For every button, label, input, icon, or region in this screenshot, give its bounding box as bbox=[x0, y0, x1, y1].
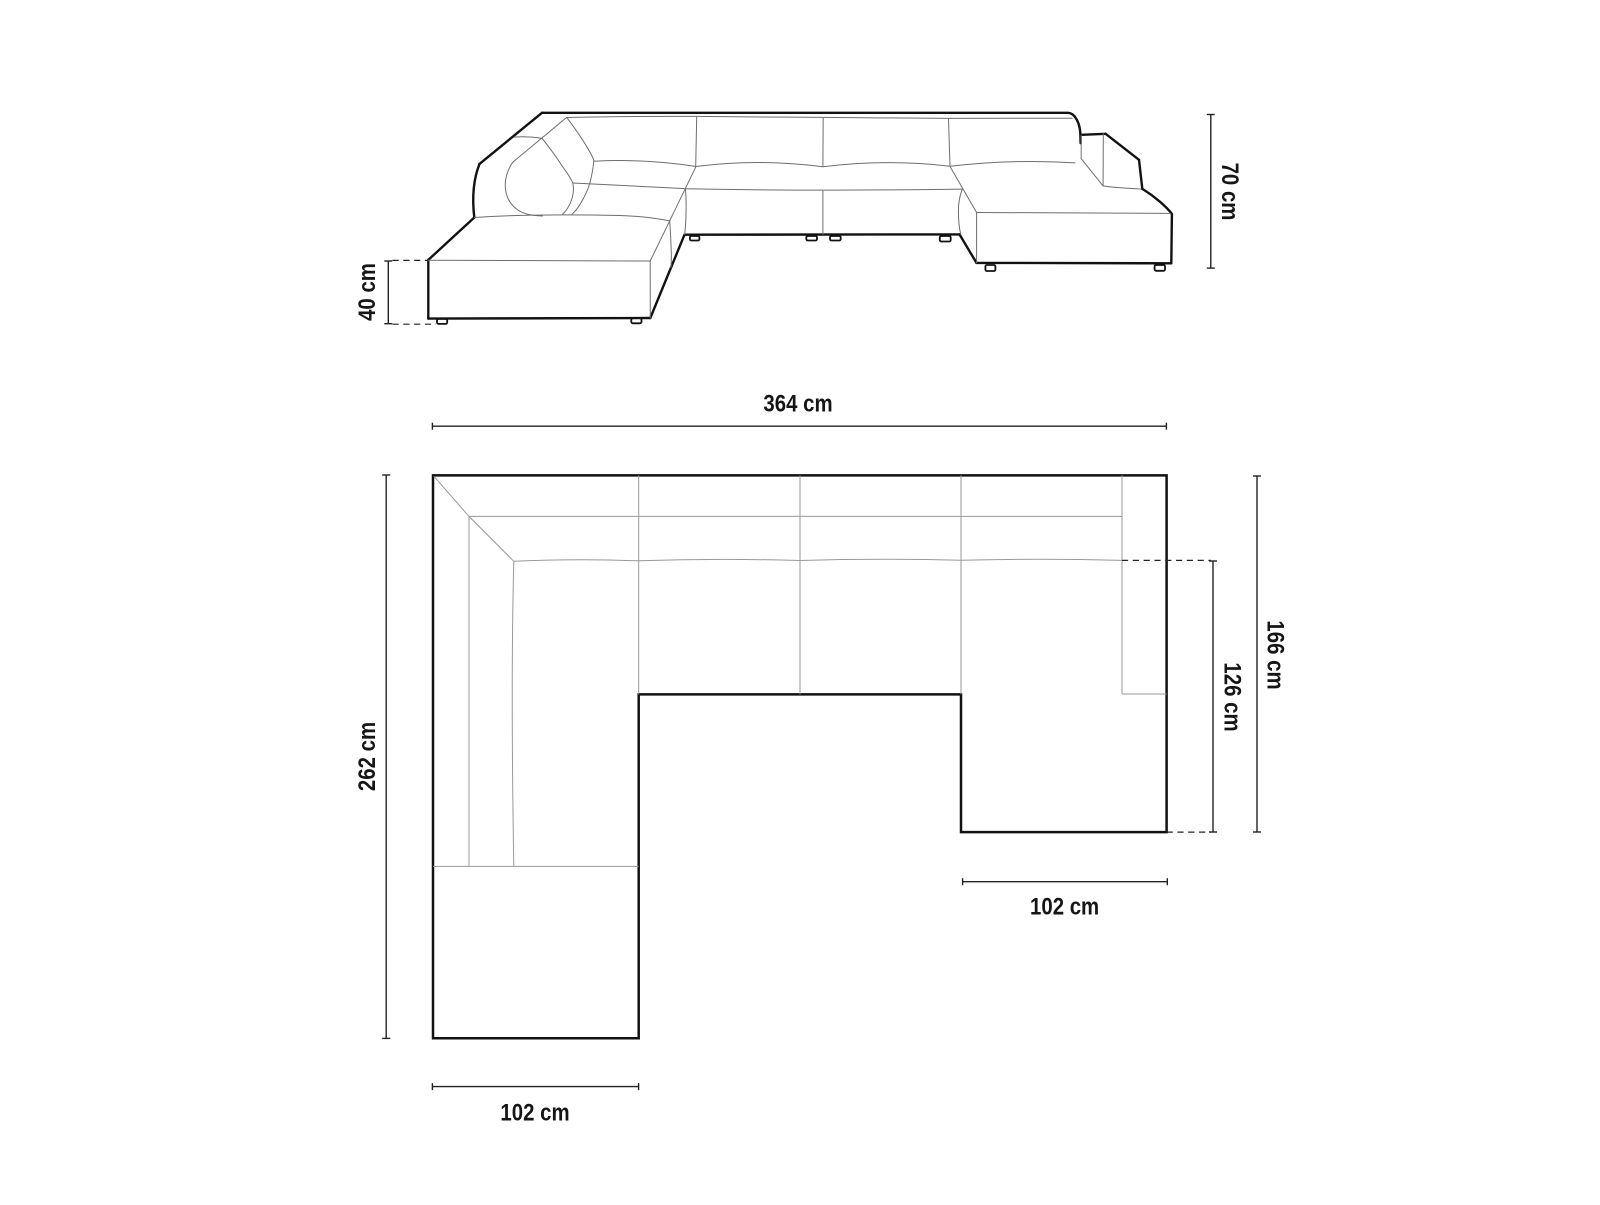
svg-text:102 cm: 102 cm bbox=[1030, 893, 1099, 920]
svg-text:102 cm: 102 cm bbox=[500, 1099, 569, 1126]
svg-text:40 cm: 40 cm bbox=[354, 263, 381, 321]
svg-text:70 cm: 70 cm bbox=[1217, 163, 1244, 221]
svg-text:166 cm: 166 cm bbox=[1262, 620, 1289, 689]
svg-text:364 cm: 364 cm bbox=[763, 390, 832, 417]
svg-text:262 cm: 262 cm bbox=[354, 722, 381, 791]
svg-text:126 cm: 126 cm bbox=[1219, 662, 1246, 731]
